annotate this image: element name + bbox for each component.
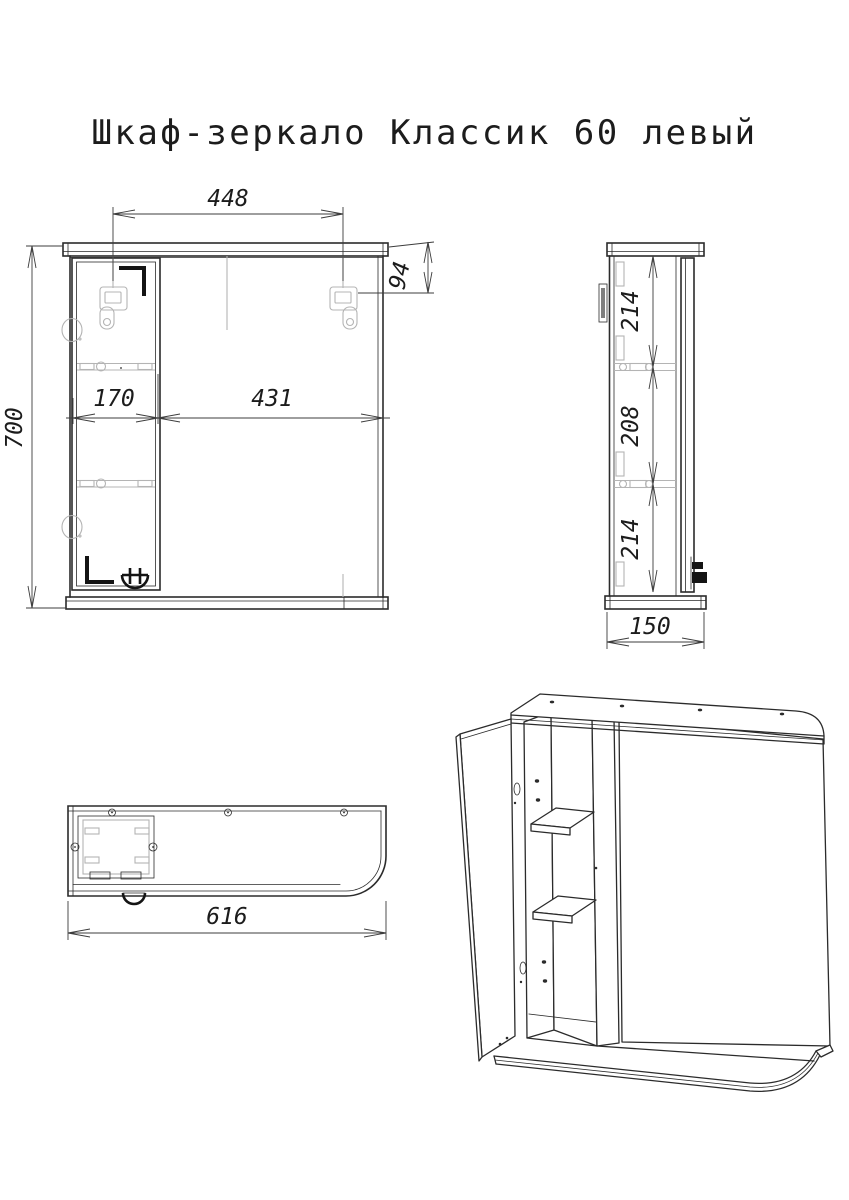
iso-door — [456, 719, 526, 1061]
dim-170-431: 170 431 — [66, 374, 390, 424]
side-base — [605, 596, 706, 609]
side-view: 214 208 214 150 — [599, 243, 707, 649]
iso-view — [456, 694, 833, 1091]
front-shelf-line-1 — [77, 362, 155, 371]
dim-94-label: 94 — [385, 259, 416, 292]
dim-150: 150 — [607, 612, 704, 649]
dim-616-label: 616 — [206, 904, 248, 930]
front-view: 448 94 170 431 — [2, 186, 434, 609]
front-door — [72, 258, 160, 590]
dim-150-label: 150 — [629, 614, 671, 640]
front-canopy — [63, 243, 388, 256]
iso-back-panel — [551, 712, 597, 1046]
side-shelf-line-2 — [614, 481, 676, 488]
front-base — [66, 597, 388, 609]
dim-sections: 214 208 214 — [618, 256, 657, 592]
dim-700: 700 — [2, 246, 66, 608]
dim-448: 448 — [113, 186, 343, 281]
top-view: 616 — [68, 806, 386, 940]
dim-214-top-label: 214 — [618, 290, 644, 332]
front-corner-bracket-top — [119, 268, 144, 296]
drawing-sheet: Шкаф-зеркало Классик 60 левый — [0, 0, 849, 1200]
technical-drawing: 448 94 170 431 — [0, 0, 849, 1200]
dim-448-label: 448 — [207, 186, 249, 212]
top-door-knob — [123, 893, 145, 904]
dim-94: 94 — [358, 242, 434, 293]
dim-616: 616 — [68, 901, 386, 940]
side-door — [681, 258, 694, 592]
top-cabinet-box — [78, 816, 154, 879]
iso-left-wall — [524, 712, 554, 1038]
top-screw-points — [71, 809, 348, 851]
side-wall-bracket — [599, 284, 607, 322]
iso-mirror-panel — [619, 719, 830, 1046]
iso-bottom-shelf — [494, 1038, 833, 1091]
side-canopy — [607, 243, 704, 256]
iso-divider — [592, 716, 619, 1046]
keyhole-bracket-right — [330, 287, 357, 329]
dim-431-label: 431 — [251, 386, 293, 412]
dim-170-label: 170 — [93, 386, 135, 412]
front-door-knob — [122, 568, 148, 588]
keyhole-bracket-left — [100, 287, 127, 329]
front-fixing-lines — [113, 256, 343, 597]
side-shelf-line-1 — [614, 364, 676, 371]
front-corner-bracket-bottom — [87, 556, 114, 582]
front-shelf-line-2 — [77, 479, 155, 488]
dim-700-label: 700 — [2, 407, 28, 449]
dim-214-bottom-label: 214 — [618, 518, 644, 560]
dim-208-label: 208 — [618, 405, 644, 447]
